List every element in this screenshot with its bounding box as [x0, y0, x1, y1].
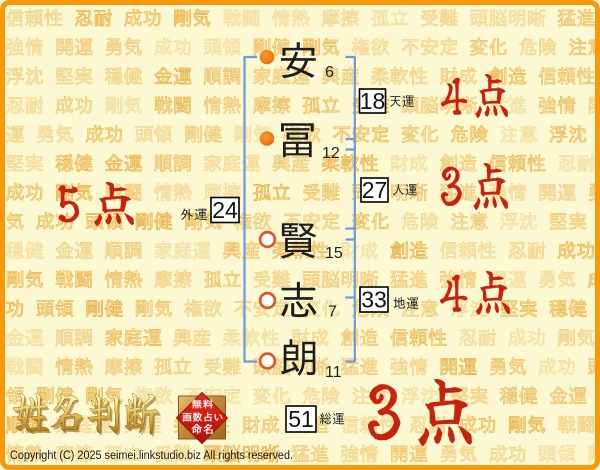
svg-text:6: 6	[325, 64, 334, 81]
svg-text:7: 7	[328, 304, 337, 321]
svg-text:11: 11	[325, 364, 342, 381]
svg-text:18: 18	[360, 88, 386, 114]
svg-text:24: 24	[212, 197, 238, 223]
svg-text:51: 51	[288, 406, 314, 432]
svg-text:12: 12	[322, 145, 340, 162]
svg-text:27: 27	[362, 177, 388, 203]
svg-text:Copyright (C) 2025 seimei.link: Copyright (C) 2025 seimei.linkstudio.biz…	[10, 450, 293, 462]
svg-text:15: 15	[325, 245, 343, 262]
svg-text:33: 33	[361, 287, 387, 313]
